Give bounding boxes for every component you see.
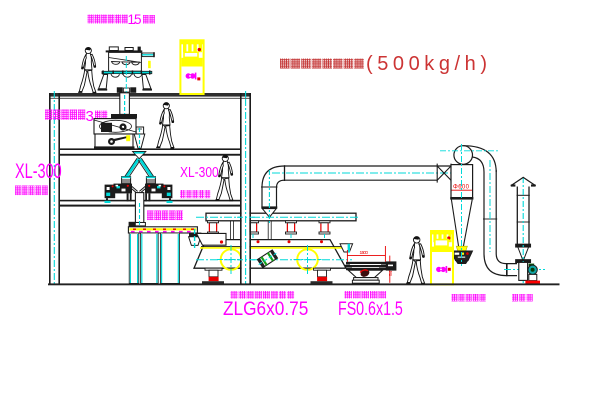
svg-text:(500kg/h): (500kg/h) (366, 53, 487, 75)
svg-text:3: 3 (86, 108, 94, 125)
svg-text:XL-300: XL-300 (15, 159, 62, 182)
svg-text:FS0.6x1.5: FS0.6x1.5 (338, 298, 403, 320)
svg-text:1.5: 1.5 (128, 12, 142, 27)
svg-text:XL-300: XL-300 (180, 164, 219, 181)
svg-text:ZLG6x0.75: ZLG6x0.75 (223, 297, 308, 319)
